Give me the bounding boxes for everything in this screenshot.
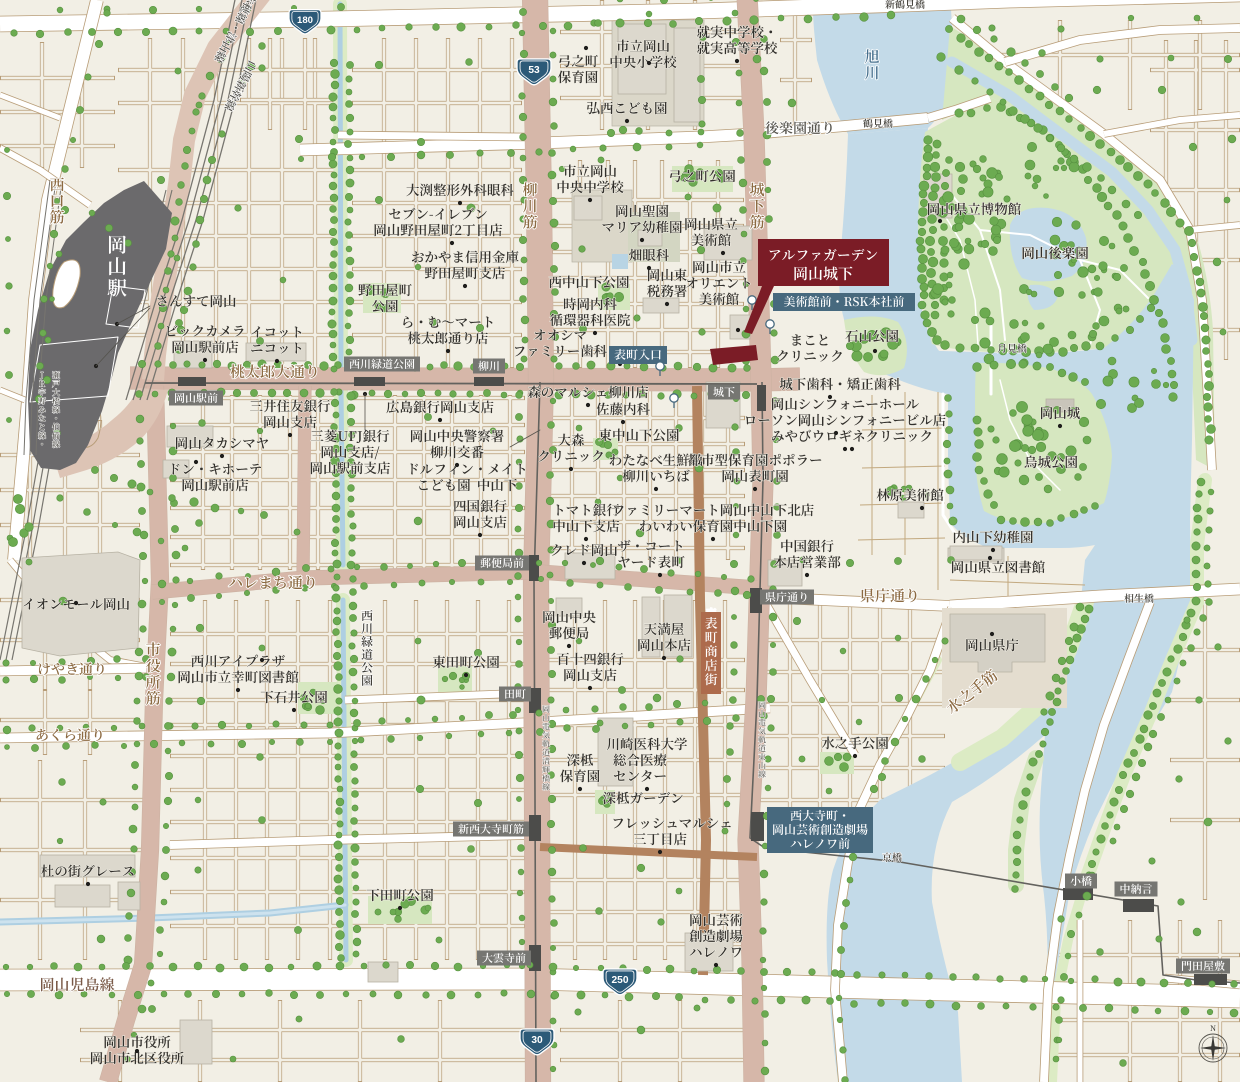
svg-text:30: 30: [531, 1035, 543, 1046]
svg-text:180: 180: [297, 15, 313, 26]
svg-text:N: N: [1210, 1024, 1216, 1033]
svg-text:53: 53: [528, 65, 540, 76]
svg-text:250: 250: [612, 975, 629, 986]
